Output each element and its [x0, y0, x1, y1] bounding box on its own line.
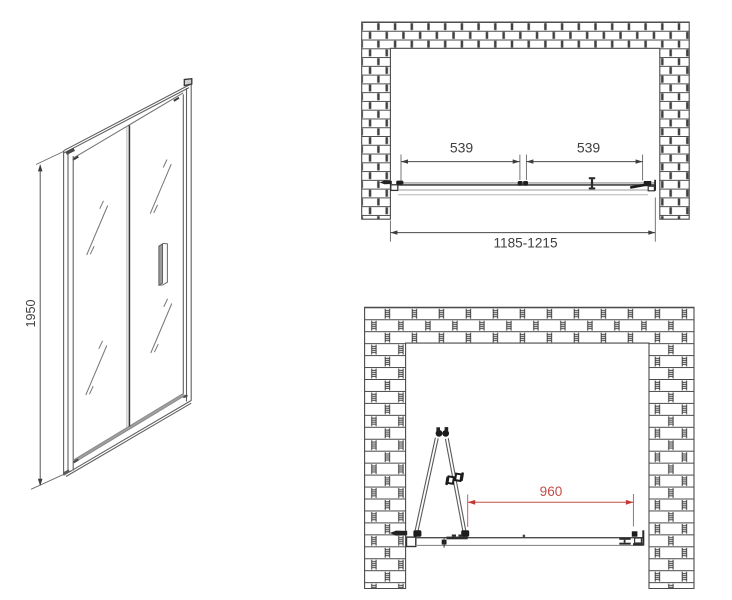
svg-text:539: 539	[577, 140, 601, 156]
svg-text:1950: 1950	[24, 299, 38, 327]
svg-text:960: 960	[540, 484, 563, 499]
svg-text:539: 539	[450, 140, 474, 156]
svg-text:1185-1215: 1185-1215	[494, 235, 558, 250]
